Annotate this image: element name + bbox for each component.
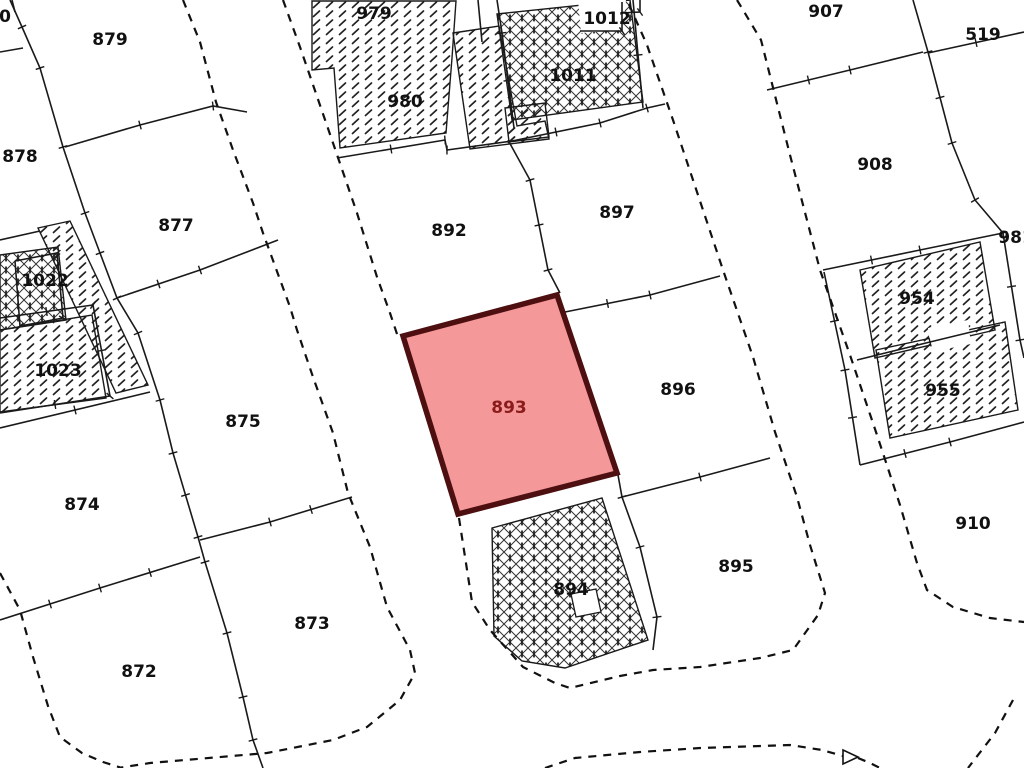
- parcel-label-954: 954: [899, 289, 935, 309]
- boundary-tick: [535, 224, 544, 226]
- parcel-label-979: 979: [356, 4, 392, 24]
- boundary-tick: [919, 246, 921, 255]
- parcel-label-875: 875: [225, 412, 261, 432]
- boundary-tick: [653, 616, 662, 617]
- boundary-tick: [649, 291, 651, 300]
- road-bottom-edge-2: [858, 758, 880, 768]
- parcel-label-907: 907: [808, 2, 844, 22]
- parcel-label-1023: 1023: [34, 361, 81, 381]
- parcel-boundary-line: [508, 140, 560, 293]
- parcel-label-877: 877: [158, 216, 194, 236]
- parcel-boundary-line: [0, 231, 40, 240]
- parcel-label-955: 955: [925, 381, 961, 401]
- parcel-label-878: 878: [2, 147, 38, 167]
- parcel-label-981: 981: [998, 228, 1024, 248]
- boundary-tick: [212, 102, 213, 111]
- parcel-label-873: 873: [294, 614, 330, 634]
- boundary-tick: [871, 256, 873, 265]
- parcel-label-892: 892: [431, 221, 467, 241]
- parcel-boundary-line: [117, 240, 278, 298]
- parcel-label-519: 519: [965, 25, 1001, 45]
- road-bottom-edge: [545, 745, 843, 768]
- parcel-label-1011: 1011: [549, 66, 596, 86]
- boundary-tick: [555, 128, 557, 137]
- parcel-label-874: 874: [64, 495, 100, 515]
- parcel-label-894: 894: [553, 580, 589, 600]
- parcel-label-1022: 1022: [21, 271, 68, 291]
- markers-layer: [843, 750, 858, 764]
- parcel-boundary-line: [767, 52, 923, 90]
- parcel-boundary-line: [565, 276, 720, 312]
- parcel-boundary-line: [65, 106, 247, 147]
- parcel-label-0: 0: [0, 7, 11, 27]
- boundary-tick: [848, 417, 857, 418]
- boundary-tick: [607, 299, 609, 308]
- parcel-label-872: 872: [121, 662, 157, 682]
- road-bottom-right-corner: [968, 700, 1013, 768]
- road-corner-sw: [0, 573, 122, 768]
- parcel-label-908: 908: [857, 155, 893, 175]
- parcel-label-896: 896: [660, 380, 696, 400]
- parcel-label-1012: 1012: [583, 9, 630, 29]
- cadastral-map-viewport: 0879878877102210238758748738729799808921…: [0, 0, 1024, 768]
- parcel-boundary-line: [622, 458, 770, 497]
- parcel-label-893: 893: [491, 398, 527, 418]
- survey-triangle-marker: [843, 750, 858, 764]
- parcel-label-910: 910: [955, 514, 991, 534]
- parcel-boundary-line: [824, 272, 860, 465]
- boundary-tick: [390, 145, 391, 154]
- boundary-tick: [1016, 339, 1024, 340]
- parcel-boundary-line: [200, 497, 352, 540]
- cadastral-map-svg: 0879878877102210238758748738729799808921…: [0, 0, 1024, 768]
- parcel-label-897: 897: [599, 203, 635, 223]
- boundary-tick: [634, 55, 643, 56]
- parcel-boundary-line: [0, 48, 23, 52]
- boundary-tick: [1007, 286, 1016, 287]
- boundary-tick: [841, 369, 850, 371]
- boundary-tick: [445, 136, 446, 145]
- parcel-label-879: 879: [92, 30, 128, 50]
- parcel-label-895: 895: [718, 557, 754, 577]
- parcel-label-980: 980: [387, 92, 423, 112]
